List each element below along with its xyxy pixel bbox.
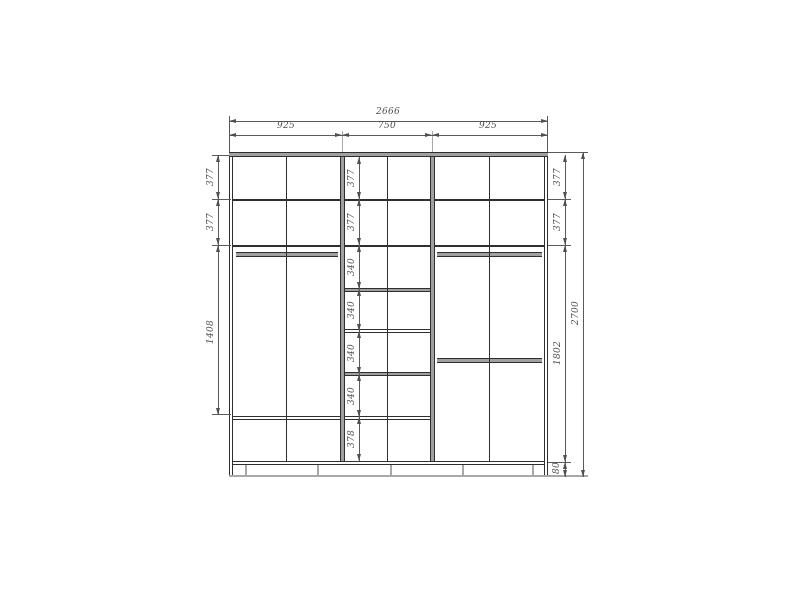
dim-arrow xyxy=(357,410,361,417)
right-side-panel xyxy=(544,157,548,477)
dim-label-overall-height: 2700 xyxy=(571,291,581,335)
dim-label-left-row3: 1408 xyxy=(206,310,216,354)
dimension-line xyxy=(583,152,584,477)
top-panel xyxy=(229,152,548,157)
hanging-rod-left xyxy=(236,252,338,257)
dim-arrow xyxy=(357,282,361,289)
dim-arrow xyxy=(229,133,236,137)
dimension-line xyxy=(229,135,548,136)
dim-label-right-row1: 377 xyxy=(553,155,563,199)
dim-arrow xyxy=(342,133,349,137)
dim-label-overall-width: 2666 xyxy=(366,107,410,117)
dim-arrow xyxy=(216,199,220,206)
dim-arrow xyxy=(357,157,361,164)
partition-panel xyxy=(430,157,435,461)
divider-line xyxy=(387,157,388,461)
extension-line xyxy=(212,245,231,246)
dim-label-mid-row1: 377 xyxy=(347,156,357,200)
plinth-foot xyxy=(532,465,534,475)
dim-label-right-row4: 80 xyxy=(552,446,562,490)
plinth-foot xyxy=(390,465,392,475)
dim-label-mid-row2: 377 xyxy=(347,200,357,244)
dim-arrow xyxy=(432,133,439,137)
shelf-line xyxy=(233,245,544,247)
dim-arrow xyxy=(357,331,361,338)
dim-arrow xyxy=(216,245,220,252)
shelf-line xyxy=(233,199,544,201)
divider-line xyxy=(489,157,490,461)
dim-arrow xyxy=(335,133,342,137)
dim-arrow xyxy=(357,324,361,331)
dim-arrow xyxy=(357,289,361,296)
dim-label-section-middle: 750 xyxy=(365,121,409,131)
dim-label-section-left: 925 xyxy=(264,121,308,131)
partition-panel xyxy=(340,157,345,461)
plinth-foot xyxy=(317,465,319,475)
dim-arrow xyxy=(563,455,567,462)
dim-arrow xyxy=(357,454,361,461)
dim-label-right-row3: 1802 xyxy=(553,331,563,375)
dim-arrow xyxy=(357,199,361,206)
dim-arrow xyxy=(357,192,361,199)
left-side-panel xyxy=(229,157,233,477)
divider-line xyxy=(286,157,287,461)
plinth-foot xyxy=(462,465,464,475)
dim-label-left-row1: 377 xyxy=(206,155,216,199)
dim-label-mid-row3: 340 xyxy=(347,245,357,289)
dim-arrow xyxy=(563,470,567,477)
dim-arrow xyxy=(563,192,567,199)
dim-label-mid-row4: 340 xyxy=(347,288,357,332)
dim-arrow xyxy=(563,238,567,245)
dim-arrow xyxy=(581,152,585,159)
shelf-line xyxy=(233,416,430,420)
dim-arrow xyxy=(357,374,361,381)
dim-arrow xyxy=(357,238,361,245)
dim-label-mid-row5: 340 xyxy=(347,331,357,375)
dim-arrow xyxy=(563,199,567,206)
dim-arrow xyxy=(581,470,585,477)
dim-label-left-row2: 377 xyxy=(206,200,216,244)
dim-arrow xyxy=(563,245,567,252)
dim-label-mid-row6: 340 xyxy=(347,374,357,418)
dim-arrow xyxy=(425,133,432,137)
dim-arrow xyxy=(357,367,361,374)
dim-arrow xyxy=(229,119,236,123)
bottom-panel xyxy=(233,461,544,465)
dim-arrow xyxy=(563,462,567,469)
dim-arrow xyxy=(357,245,361,252)
dim-arrow xyxy=(216,192,220,199)
dim-arrow xyxy=(216,408,220,415)
extension-line xyxy=(212,414,231,415)
dim-arrow xyxy=(216,155,220,162)
dim-arrow xyxy=(357,417,361,424)
dim-arrow xyxy=(541,133,548,137)
base-line xyxy=(229,475,588,477)
wardrobe-elevation-drawing: 2666 925 750 925 377 377 1408 377 377 34… xyxy=(0,0,800,600)
dim-label-section-right: 925 xyxy=(466,121,510,131)
dim-arrow xyxy=(541,119,548,123)
dim-label-mid-row7: 378 xyxy=(347,417,357,461)
dim-arrow xyxy=(216,238,220,245)
plinth-foot xyxy=(245,465,247,475)
dim-label-right-row2: 377 xyxy=(553,200,563,244)
extension-line xyxy=(548,245,571,246)
dim-arrow xyxy=(563,155,567,162)
